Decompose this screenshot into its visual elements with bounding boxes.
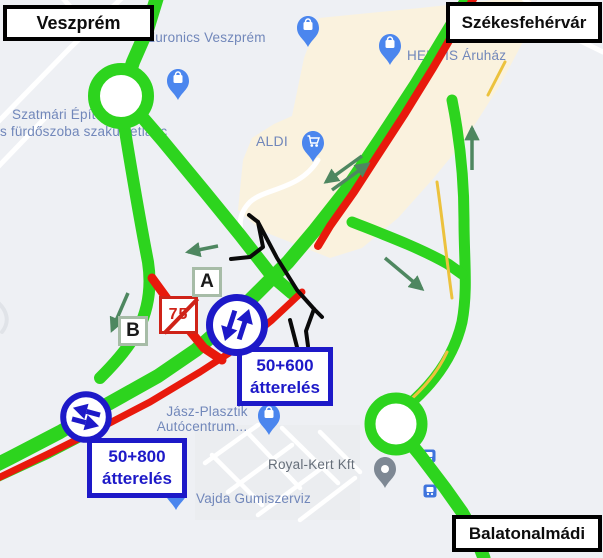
label-vajda[interactable]: Vajda Gumiszerviz	[196, 491, 311, 506]
detour-map: Euronics Veszprém Szatmári Építészeti s …	[0, 0, 603, 558]
city-sign-balatonalmadi: Balatonalmádi	[452, 515, 602, 552]
label-hervis[interactable]: HERVIS Áruház	[407, 48, 506, 63]
detour-box-50-800: 50+800 átterelés	[87, 438, 187, 498]
roundabout-south	[370, 398, 422, 450]
detour-km: 50+800	[92, 446, 182, 468]
two-way-detour-sign-icon	[58, 389, 114, 445]
label-royal-kert[interactable]: Royal-Kert Kft	[268, 457, 355, 472]
label-euronics[interactable]: Euronics Veszprém	[146, 30, 266, 45]
transit-stop-icon[interactable]	[424, 485, 437, 498]
city-sign-szekesfehervar: Székesfehérvár	[446, 2, 602, 43]
two-way-detour-sign-icon	[203, 291, 271, 359]
marker-a-label: A	[200, 271, 214, 293]
label-jasz-line1[interactable]: Jász-Plasztik	[166, 404, 247, 419]
city-sign-veszprem: Veszprém	[3, 5, 154, 41]
closed-route-number-sign: 75	[159, 296, 198, 334]
city-name: Balatonalmádi	[469, 524, 585, 544]
detour-word: átterelés	[242, 377, 328, 399]
detour-word: átterelés	[92, 468, 182, 490]
label-aldi[interactable]: ALDI	[256, 133, 288, 149]
label-jasz-line2[interactable]: Autócentrum...	[157, 419, 248, 434]
city-name: Székesfehérvár	[462, 13, 587, 33]
roundabout-north	[94, 69, 148, 123]
city-name: Veszprém	[36, 13, 120, 34]
marker-b: B	[118, 316, 148, 346]
marker-b-label: B	[126, 320, 140, 342]
